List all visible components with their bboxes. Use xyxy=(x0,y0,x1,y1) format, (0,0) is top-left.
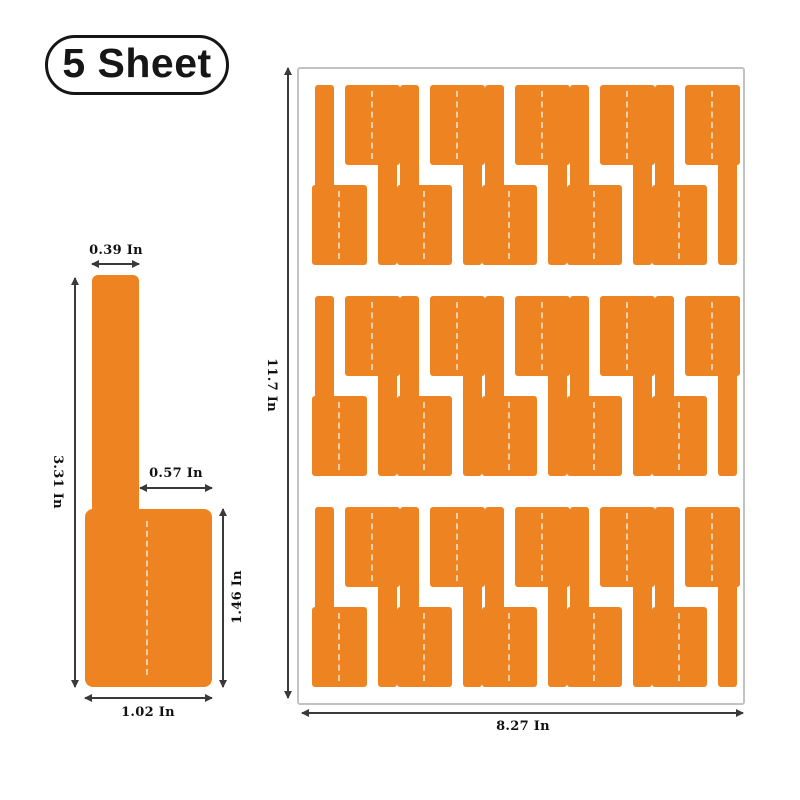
flag-width-label: 1.02 In xyxy=(108,705,188,720)
sticker-stem xyxy=(548,374,567,476)
sticker-stem xyxy=(378,585,397,687)
sticker-stem xyxy=(485,507,504,608)
fold-line xyxy=(456,513,458,581)
fold-line xyxy=(371,513,373,581)
product-infographic: 5 Sheet 0.39 In 3.31 In 0.57 In 1.46 In … xyxy=(0,0,800,800)
fold-line xyxy=(541,513,543,581)
fold-line xyxy=(508,191,510,259)
sticker-stem xyxy=(315,85,334,186)
fold-line xyxy=(541,302,543,370)
sticker-stem xyxy=(400,296,419,397)
fold-line xyxy=(338,402,340,470)
sheet-count-label: 5 Sheet xyxy=(62,40,211,90)
sheet-height-label: 11.7 In xyxy=(264,350,280,420)
fold-line xyxy=(711,91,713,159)
stem-width-arrow xyxy=(92,263,139,265)
fold-line xyxy=(541,91,543,159)
sticker-stem xyxy=(315,507,334,608)
sticker-stem xyxy=(655,296,674,397)
fold-line xyxy=(371,91,373,159)
sticker-stem xyxy=(400,85,419,186)
notch-width-arrow xyxy=(140,487,212,489)
label-stem-shape xyxy=(92,275,139,511)
fold-line xyxy=(423,191,425,259)
fold-line xyxy=(338,613,340,681)
sheet-width-label: 8.27 In xyxy=(483,719,563,734)
flag-width-arrow xyxy=(85,697,212,699)
sticker-stem xyxy=(378,163,397,265)
total-height-label: 3.31 In xyxy=(50,447,66,517)
fold-line xyxy=(456,302,458,370)
sticker-stem xyxy=(378,374,397,476)
fold-line xyxy=(371,302,373,370)
fold-line xyxy=(626,513,628,581)
label-sheet xyxy=(297,67,745,705)
fold-line xyxy=(508,402,510,470)
fold-line xyxy=(146,521,148,675)
sticker-stem xyxy=(570,296,589,397)
sticker-stem xyxy=(570,85,589,186)
fold-line xyxy=(711,513,713,581)
fold-line xyxy=(456,91,458,159)
sticker-stem xyxy=(485,85,504,186)
fold-line xyxy=(423,402,425,470)
fold-line xyxy=(678,402,680,470)
fold-line xyxy=(678,191,680,259)
fold-line xyxy=(338,191,340,259)
fold-line xyxy=(678,613,680,681)
stem-width-label: 0.39 In xyxy=(76,243,156,258)
sticker-stem xyxy=(463,163,482,265)
fold-line xyxy=(423,613,425,681)
fold-line xyxy=(593,613,595,681)
sticker-stem xyxy=(655,85,674,186)
flag-height-arrow xyxy=(222,509,224,687)
sticker-stem xyxy=(718,374,737,476)
fold-line xyxy=(593,402,595,470)
sheet-count-badge: 5 Sheet xyxy=(45,35,229,95)
sticker-stem xyxy=(718,585,737,687)
fold-line xyxy=(626,302,628,370)
fold-line xyxy=(626,91,628,159)
fold-line xyxy=(593,191,595,259)
sticker-stem xyxy=(548,163,567,265)
sticker-stem xyxy=(633,163,652,265)
sticker-stem xyxy=(485,296,504,397)
total-height-arrow xyxy=(74,278,76,687)
sticker-stem xyxy=(655,507,674,608)
label-flag-shape xyxy=(85,509,212,687)
sticker-stem xyxy=(570,507,589,608)
sticker-stem xyxy=(633,585,652,687)
sheet-height-arrow xyxy=(287,68,289,698)
fold-line xyxy=(711,302,713,370)
sheet-width-arrow xyxy=(302,712,743,714)
sticker-stem xyxy=(400,507,419,608)
sticker-stem xyxy=(548,585,567,687)
sticker-stem xyxy=(633,374,652,476)
notch-width-label: 0.57 In xyxy=(136,466,216,481)
sticker-stem xyxy=(463,374,482,476)
flag-height-label: 1.46 In xyxy=(229,562,245,632)
fold-line xyxy=(508,613,510,681)
sticker-stem xyxy=(315,296,334,397)
sticker-stem xyxy=(718,163,737,265)
sticker-stem xyxy=(463,585,482,687)
